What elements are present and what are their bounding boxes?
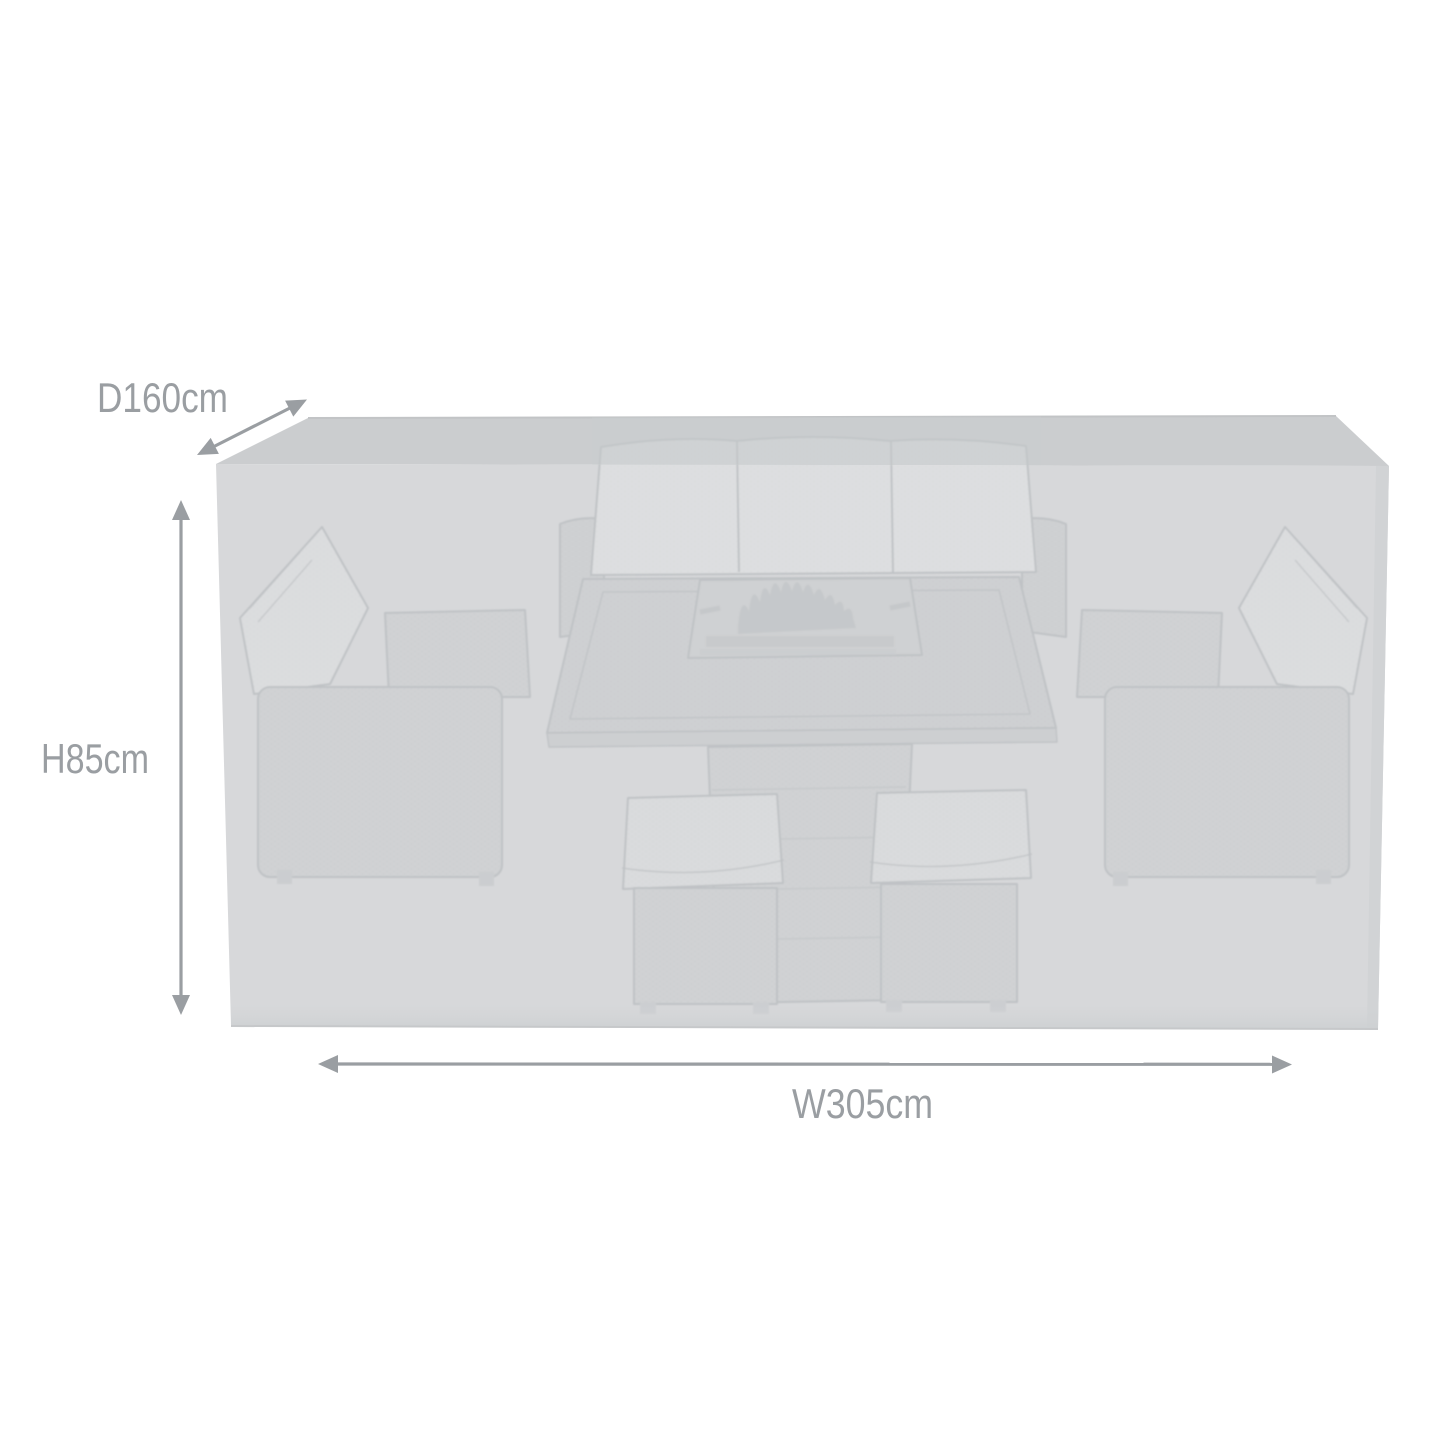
svg-text:D160cm: D160cm — [97, 374, 228, 421]
svg-text:W305cm: W305cm — [792, 1080, 933, 1127]
svg-text:H85cm: H85cm — [41, 735, 149, 782]
